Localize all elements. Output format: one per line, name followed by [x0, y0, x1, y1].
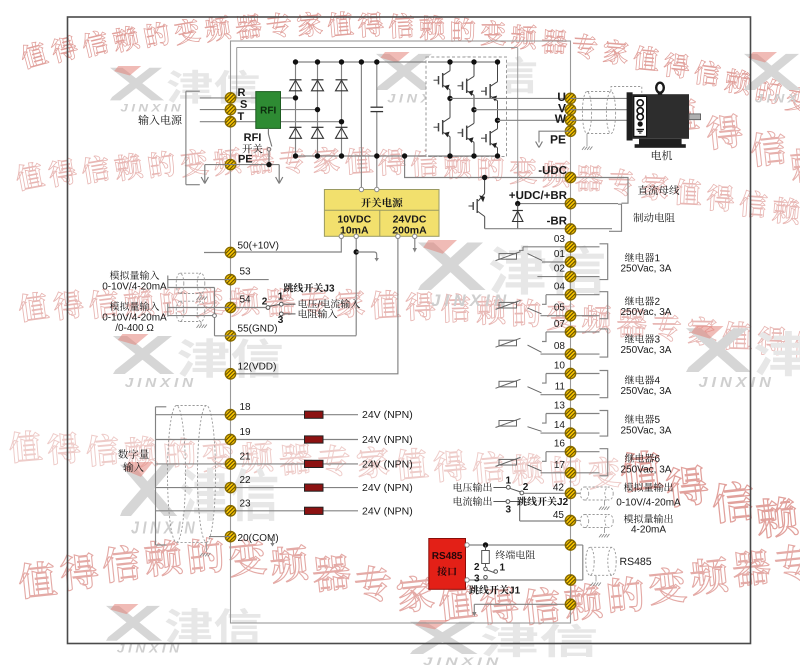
svg-text:2: 2: [262, 297, 268, 308]
svg-text:42: 42: [553, 483, 565, 494]
svg-text:0-10V/4-20mA: 0-10V/4-20mA: [102, 282, 167, 293]
svg-text:JINXIN: JINXIN: [131, 519, 198, 538]
svg-text:23: 23: [240, 498, 252, 509]
svg-text:1: 1: [500, 563, 506, 574]
svg-text:05: 05: [554, 303, 566, 314]
svg-text:3: 3: [278, 315, 284, 326]
svg-text:54: 54: [240, 295, 252, 306]
svg-text:2: 2: [523, 482, 529, 493]
svg-text:250Vac, 3A: 250Vac, 3A: [621, 307, 672, 318]
svg-text:53: 53: [240, 267, 252, 278]
svg-text:14: 14: [554, 420, 566, 431]
svg-text:02: 02: [554, 264, 566, 275]
svg-text:08: 08: [554, 341, 566, 352]
svg-text:22: 22: [240, 475, 252, 486]
svg-text:24V (NPN): 24V (NPN): [362, 409, 413, 421]
svg-text:3: 3: [506, 505, 512, 516]
svg-text:250Vac, 3A: 250Vac, 3A: [621, 264, 672, 275]
svg-text:24V (NPN): 24V (NPN): [362, 434, 413, 446]
svg-text:24V (NPN): 24V (NPN): [362, 458, 413, 470]
svg-text:/0-400 Ω: /0-400 Ω: [115, 323, 154, 334]
svg-text:3: 3: [474, 574, 480, 585]
svg-text:04: 04: [554, 282, 566, 293]
svg-text:2: 2: [474, 562, 480, 573]
svg-text:24V (NPN): 24V (NPN): [362, 505, 413, 517]
svg-text:10: 10: [554, 361, 566, 372]
svg-text:0-10V/4-20mA: 0-10V/4-20mA: [616, 498, 681, 509]
svg-text:11: 11: [555, 382, 566, 393]
svg-text:16: 16: [554, 439, 566, 450]
svg-text:JINXIN: JINXIN: [431, 292, 510, 311]
svg-text:4-20mA: 4-20mA: [631, 525, 666, 536]
svg-text:18: 18: [240, 402, 252, 413]
svg-text:JINXIN: JINXIN: [755, 91, 800, 105]
svg-text:17: 17: [554, 460, 566, 471]
svg-text:1: 1: [506, 476, 512, 487]
svg-text:19: 19: [240, 427, 252, 438]
svg-text:03: 03: [554, 234, 566, 245]
svg-text:07: 07: [554, 319, 566, 330]
svg-text:JINXIN: JINXIN: [125, 376, 197, 391]
svg-text:JINXIN: JINXIN: [120, 102, 184, 115]
svg-text:01: 01: [554, 249, 566, 260]
svg-text:250Vac, 3A: 250Vac, 3A: [621, 464, 672, 475]
svg-text:21: 21: [240, 451, 252, 462]
svg-text:JINXIN: JINXIN: [423, 656, 502, 665]
svg-text:250Vac, 3A: 250Vac, 3A: [621, 345, 672, 356]
svg-text:24V (NPN): 24V (NPN): [362, 482, 413, 494]
svg-text:JINXIN: JINXIN: [699, 375, 775, 391]
svg-text:250Vac, 3A: 250Vac, 3A: [621, 386, 672, 397]
svg-text:0-10V/4-20mA: 0-10V/4-20mA: [102, 313, 167, 324]
svg-text:13: 13: [554, 401, 566, 412]
svg-text:1: 1: [278, 292, 284, 303]
svg-text:250Vac, 3A: 250Vac, 3A: [621, 425, 672, 436]
svg-text:45: 45: [553, 510, 565, 521]
